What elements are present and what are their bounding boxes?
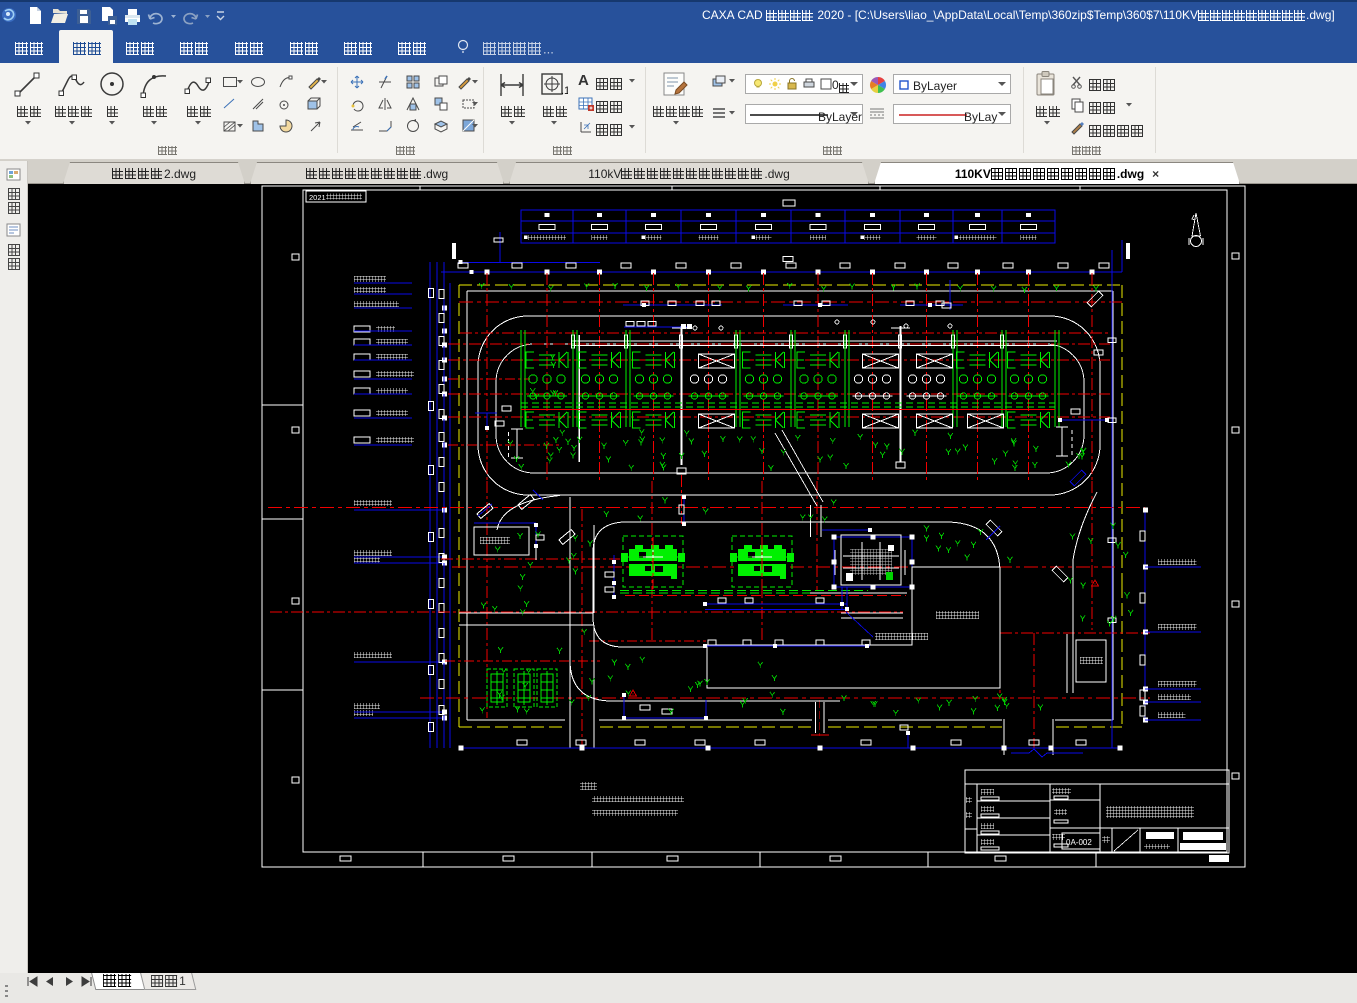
- svg-text:.1: .1: [561, 85, 568, 97]
- svg-text:2021: 2021: [309, 193, 326, 202]
- svg-text:0A-002: 0A-002: [1066, 838, 1092, 847]
